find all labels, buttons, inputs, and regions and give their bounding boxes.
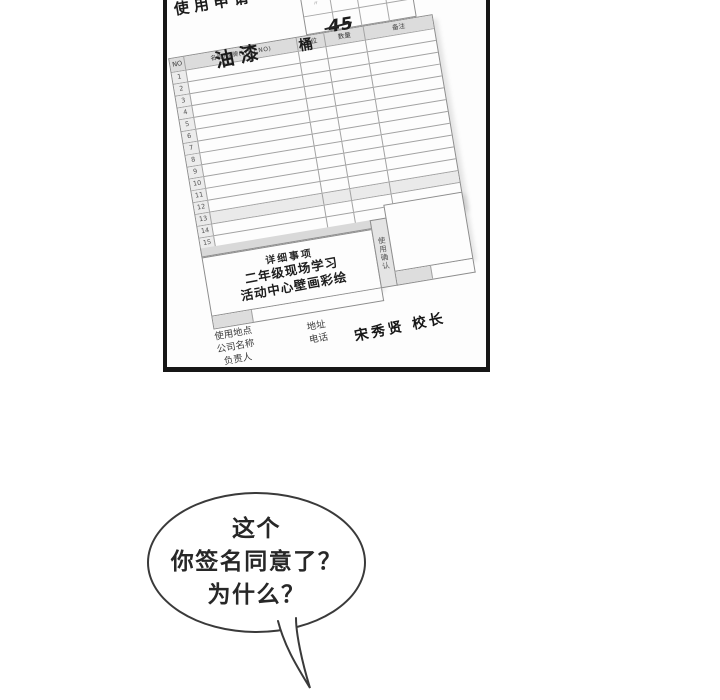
bubble-line-2: 你签名同意了？	[171, 546, 343, 579]
footer-labels-left: 使用地点 公司名称 负责人	[186, 319, 286, 372]
principal-signature: 宋秀贤 校长	[353, 298, 490, 346]
form-title: 使用申请	[172, 0, 314, 20]
requisition-form: 使用申请 〃 〃 〃 NO 名称/品牌(LD.T.NO) 单位 数量 备注	[163, 0, 490, 372]
comic-panel: 使用申请 〃 〃 〃 NO 名称/品牌(LD.T.NO) 单位 数量 备注	[163, 0, 490, 372]
speech-bubble-tail	[268, 616, 328, 694]
bubble-line-1: 这个	[232, 513, 281, 546]
bubble-line-3: 为什么？	[208, 579, 306, 612]
footer-labels-mid: 地址 电话	[288, 315, 348, 351]
speech-bubble: 这个 你签名同意了？ 为什么？	[147, 492, 366, 633]
comic-page: 使用申请 〃 〃 〃 NO 名称/品牌(LD.T.NO) 单位 数量 备注	[0, 0, 720, 700]
